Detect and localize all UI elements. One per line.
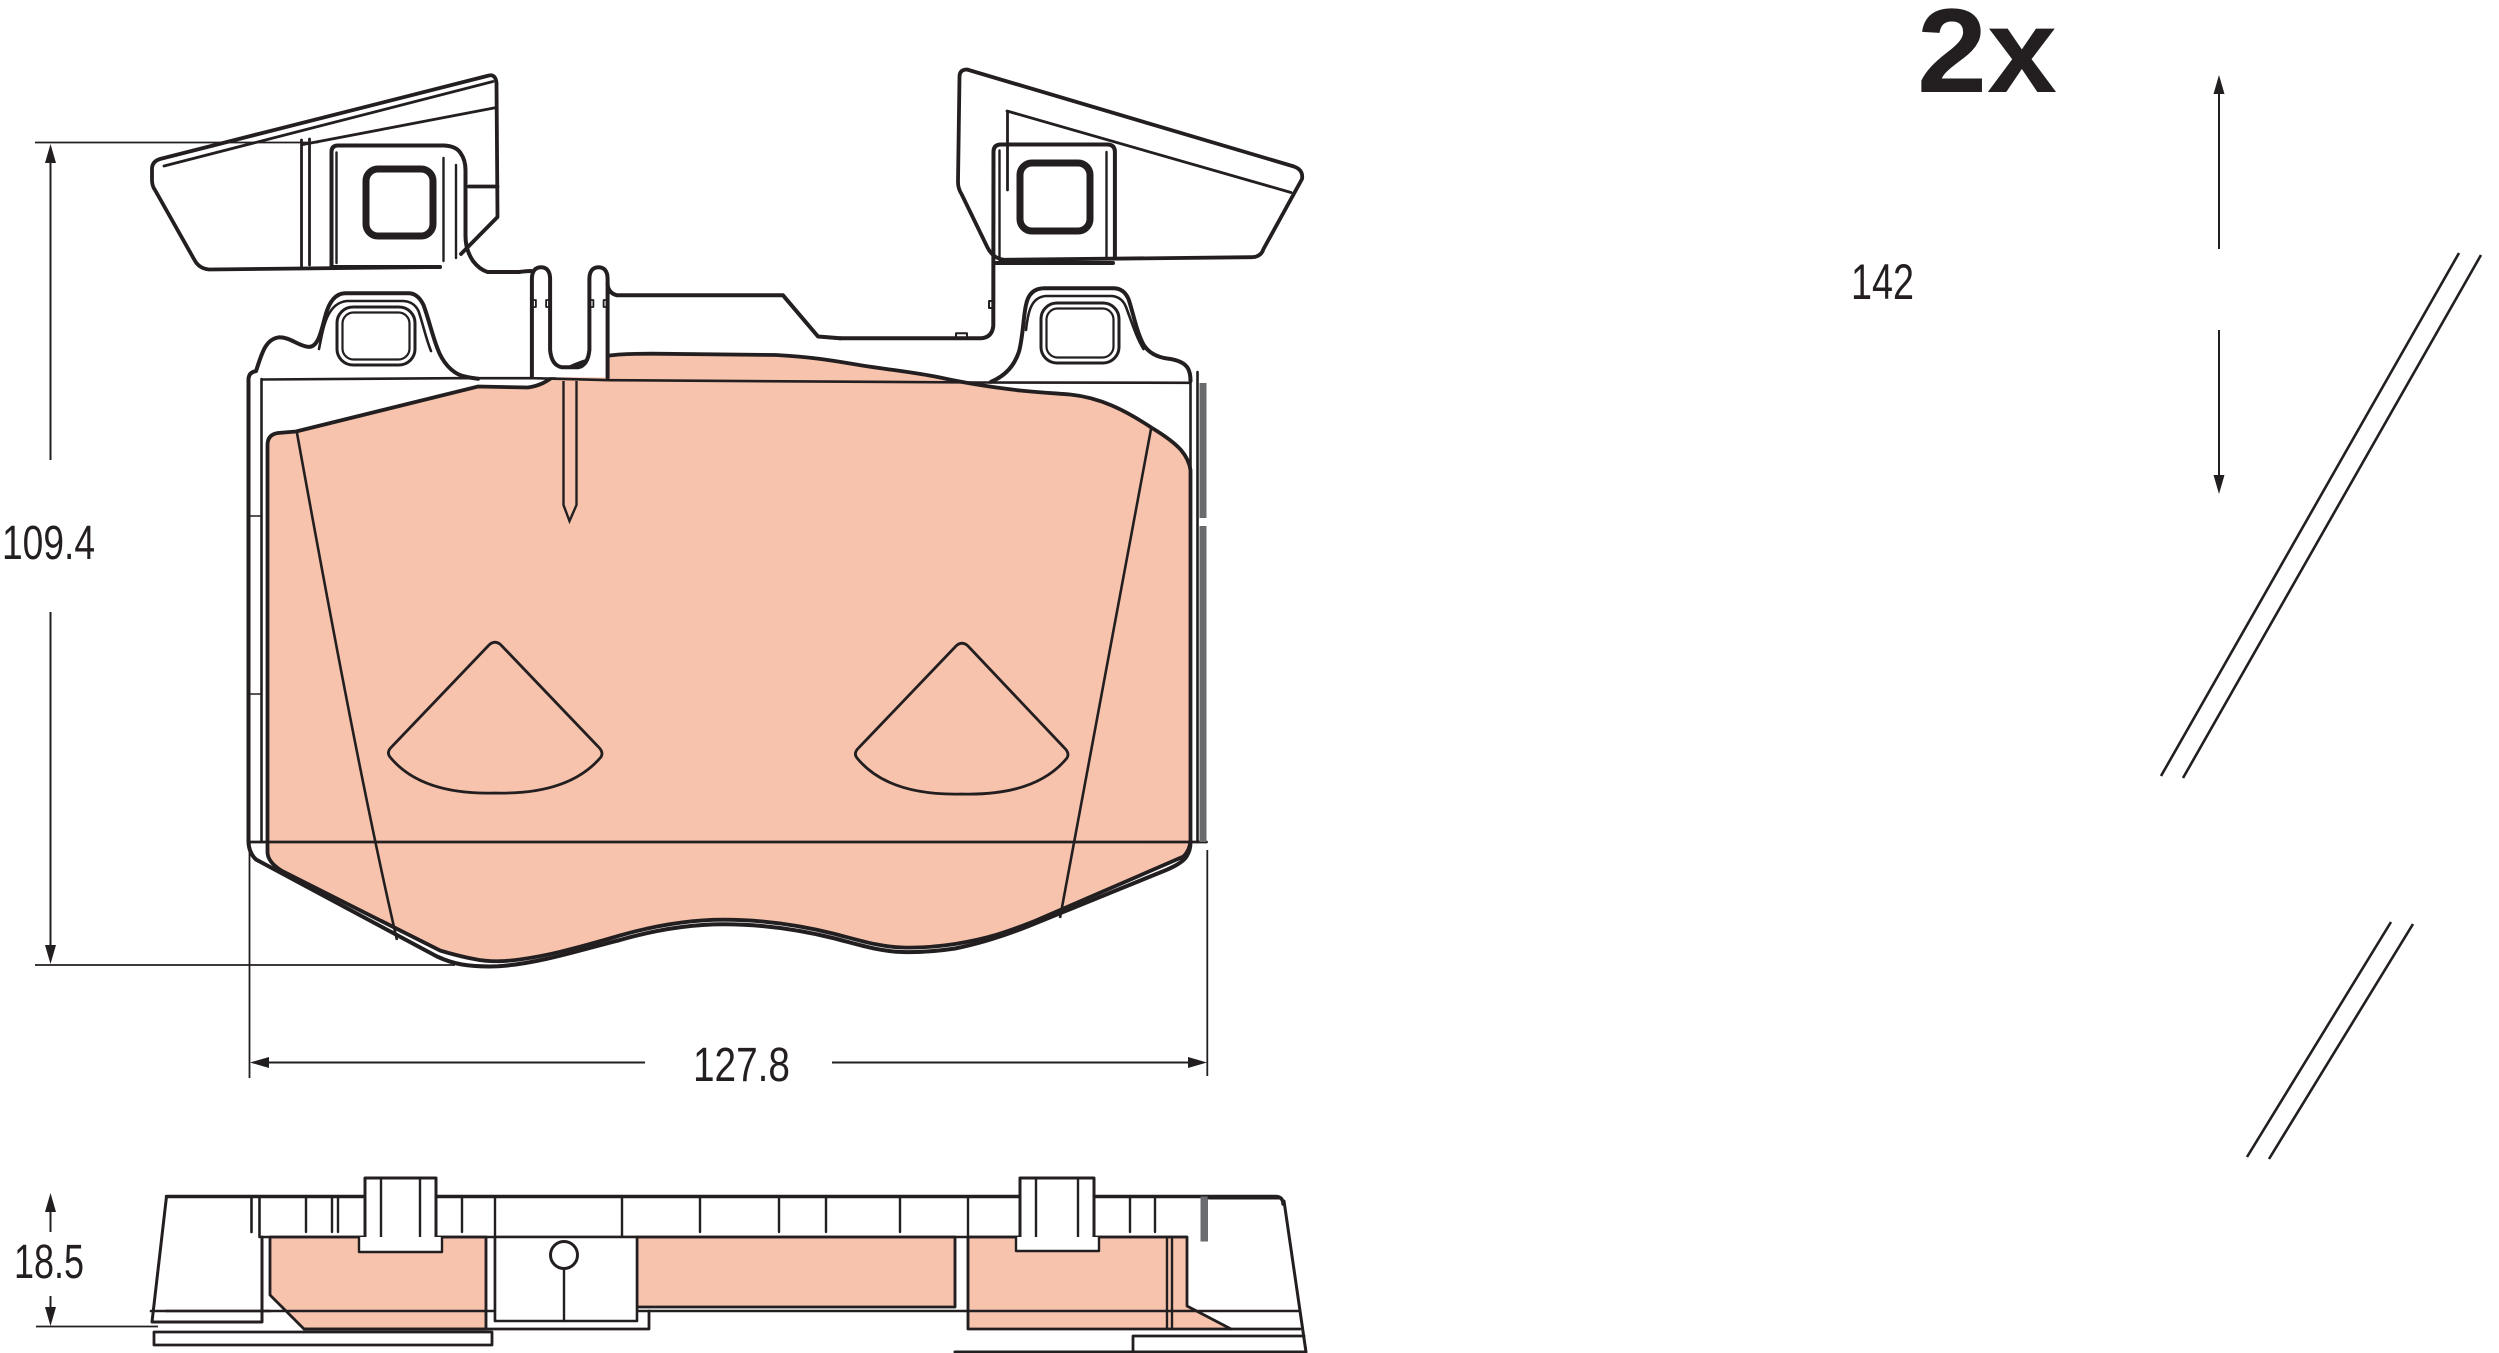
svg-text:127.8: 127.8 — [693, 1039, 790, 1092]
svg-text:142: 142 — [1851, 254, 1914, 310]
svg-text:18.5: 18.5 — [14, 1236, 84, 1289]
svg-text:109.4: 109.4 — [2, 517, 95, 570]
svg-text:2x: 2x — [1917, 0, 2057, 118]
